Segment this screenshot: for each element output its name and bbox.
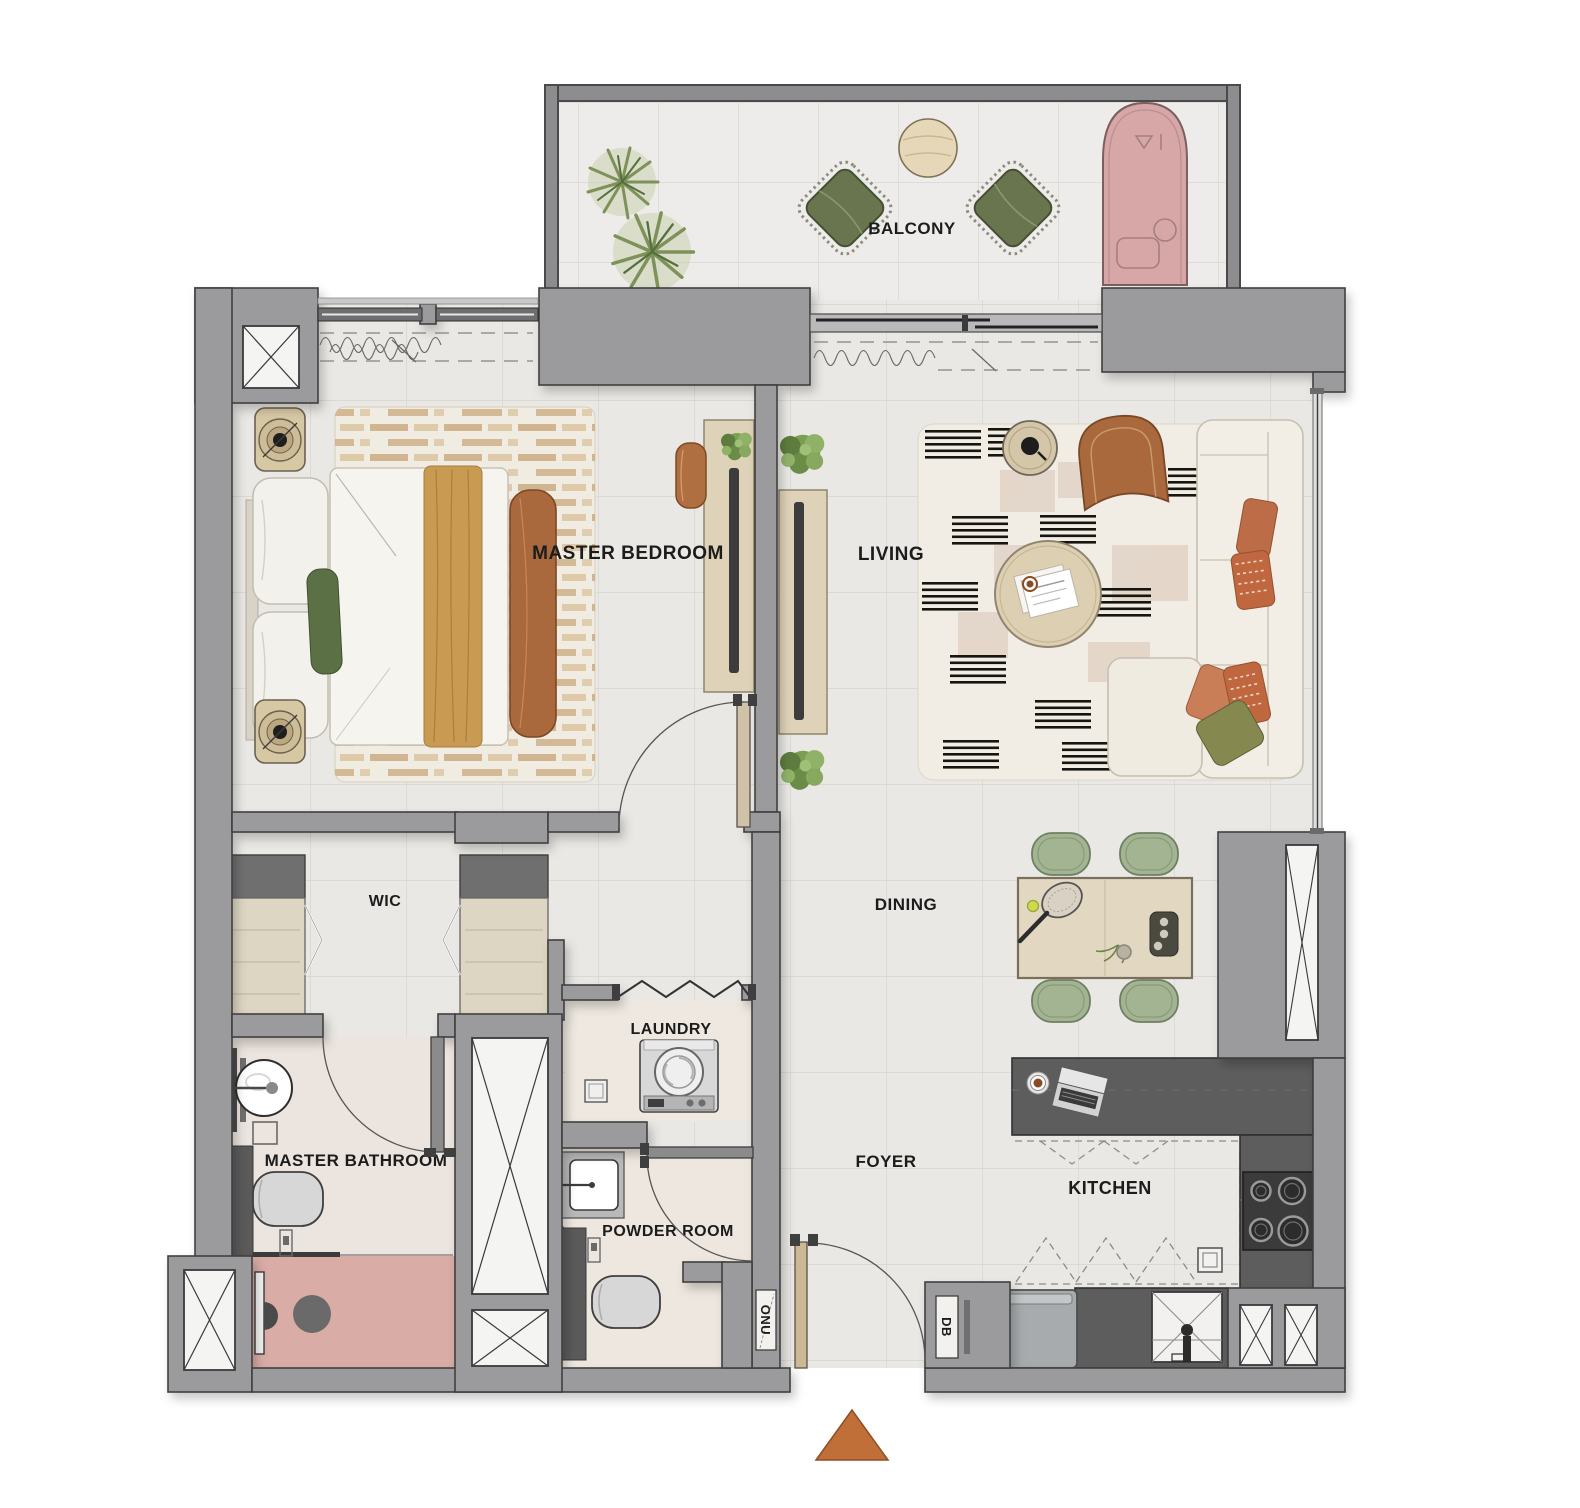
master-bathroom-label: MASTER BATHROOM [265,1151,448,1170]
living-label: LIVING [858,544,924,565]
shaft-bottom-left [184,1270,235,1370]
kitchen-label: KITCHEN [1068,1178,1152,1198]
onu-label: ONU [758,1305,773,1335]
shower-screen [252,1252,340,1257]
bed-green-pillow [306,568,342,674]
coffee-table-icon [995,541,1101,647]
balcony-label: BALCONY [868,219,956,238]
sofa-pillow-patterned [1230,550,1275,611]
powder-room-label: POWDER ROOM [602,1223,734,1240]
balcony-zone: BALCONY [545,85,1240,300]
laundry-drain-icon [585,1080,607,1102]
balcony-ottoman-icon [899,119,957,177]
master-bedroom-label: MASTER BEDROOM [532,543,724,564]
sofa-chaise [1108,658,1202,776]
shaft-right-narrow [1286,845,1318,1040]
dining-table [1018,876,1192,978]
shaft-bottom-right-1 [1240,1305,1272,1365]
wic-label: WIC [369,893,402,910]
balcony-daybed-icon [1103,103,1187,285]
bedroom-tv-icon [729,468,739,673]
shower-floor [250,1256,455,1368]
living-tv-icon [794,502,804,720]
entrance-marker-icon [816,1410,888,1460]
coffee-cup-icon [1027,1072,1049,1094]
shower-drain-icon [293,1295,331,1333]
floor-plan: BALCONY [0,0,1580,1508]
kitchen-sink-icon [1152,1292,1222,1362]
powder-sink-icon [560,1152,624,1230]
bed-bench [510,490,556,737]
bed [306,466,508,747]
powder-counter [562,1228,586,1360]
side-table-icon [1003,421,1057,475]
nightstand-bottom [255,700,305,763]
kitchen-outlet-icon [1198,1248,1222,1272]
db-label: DB [939,1317,954,1337]
shaft-top-left [243,326,299,388]
washing-machine-icon [640,1040,718,1112]
laundry-label: LAUNDRY [630,1021,711,1038]
living-tv-console [779,490,827,734]
nightstand-top [255,408,305,471]
tennis-ball-icon [1028,901,1039,912]
shaft-bottom-right-2 [1285,1305,1317,1365]
balcony-sliding-door [810,314,1102,332]
floor-plan-page: BALCONY [0,0,1580,1508]
dining-tray-icon [1150,912,1178,956]
dining-label: DINING [875,895,938,914]
cooktop-icon [1243,1172,1313,1250]
foyer-label: FOYER [855,1152,916,1171]
shaft-small-center [472,1310,548,1366]
shaft-tall-center [472,1038,548,1294]
